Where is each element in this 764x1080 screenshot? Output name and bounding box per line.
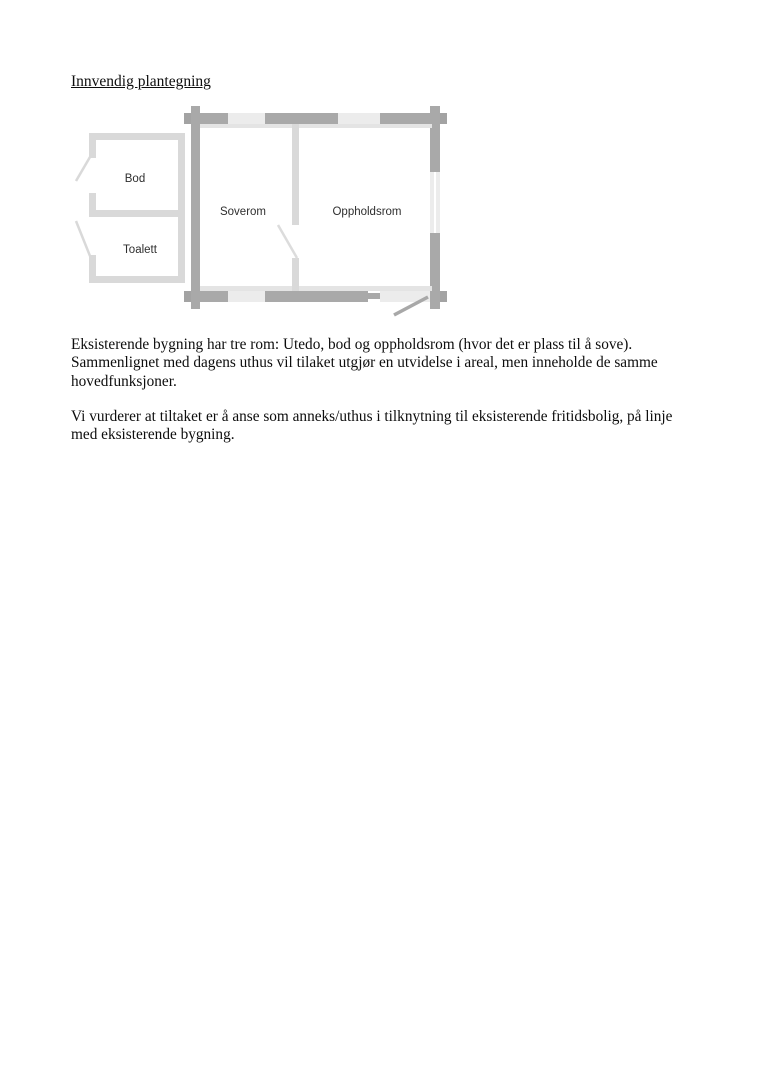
toalett-door-swing-line xyxy=(76,221,90,256)
paragraph-1-line-1: Eksisterende bygning har tre rom: Utedo,… xyxy=(71,336,658,354)
paragraph-1-line-2: Sammenlignet med dagens uthus vil tilake… xyxy=(71,354,658,372)
soverom-door-swing-line xyxy=(278,225,297,258)
bod-door-swing-line xyxy=(76,157,90,181)
room-label-toalett: Toalett xyxy=(123,244,157,256)
paragraph-2: Vi vurderer at tiltaket er å anse som an… xyxy=(71,408,672,445)
floorplan-diagram: Bod Toalett Soverom Oppholdsrom xyxy=(0,0,764,332)
paragraph-1: Eksisterende bygning har tre rom: Utedo,… xyxy=(71,336,658,391)
paragraph-1-line-3: hovedfunksjoner. xyxy=(71,373,658,391)
paragraph-2-line-2: med eksisterende bygning. xyxy=(71,426,672,444)
document-page: Innvendig plantegning xyxy=(0,0,764,1080)
paragraph-2-line-1: Vi vurderer at tiltaket er å anse som an… xyxy=(71,408,672,426)
room-label-bod: Bod xyxy=(125,173,145,185)
door-swing-lines xyxy=(0,0,764,332)
room-label-oppholdsrom: Oppholdsrom xyxy=(332,206,401,218)
room-label-soverom: Soverom xyxy=(220,206,266,218)
entry-door-swing-line xyxy=(394,297,428,315)
